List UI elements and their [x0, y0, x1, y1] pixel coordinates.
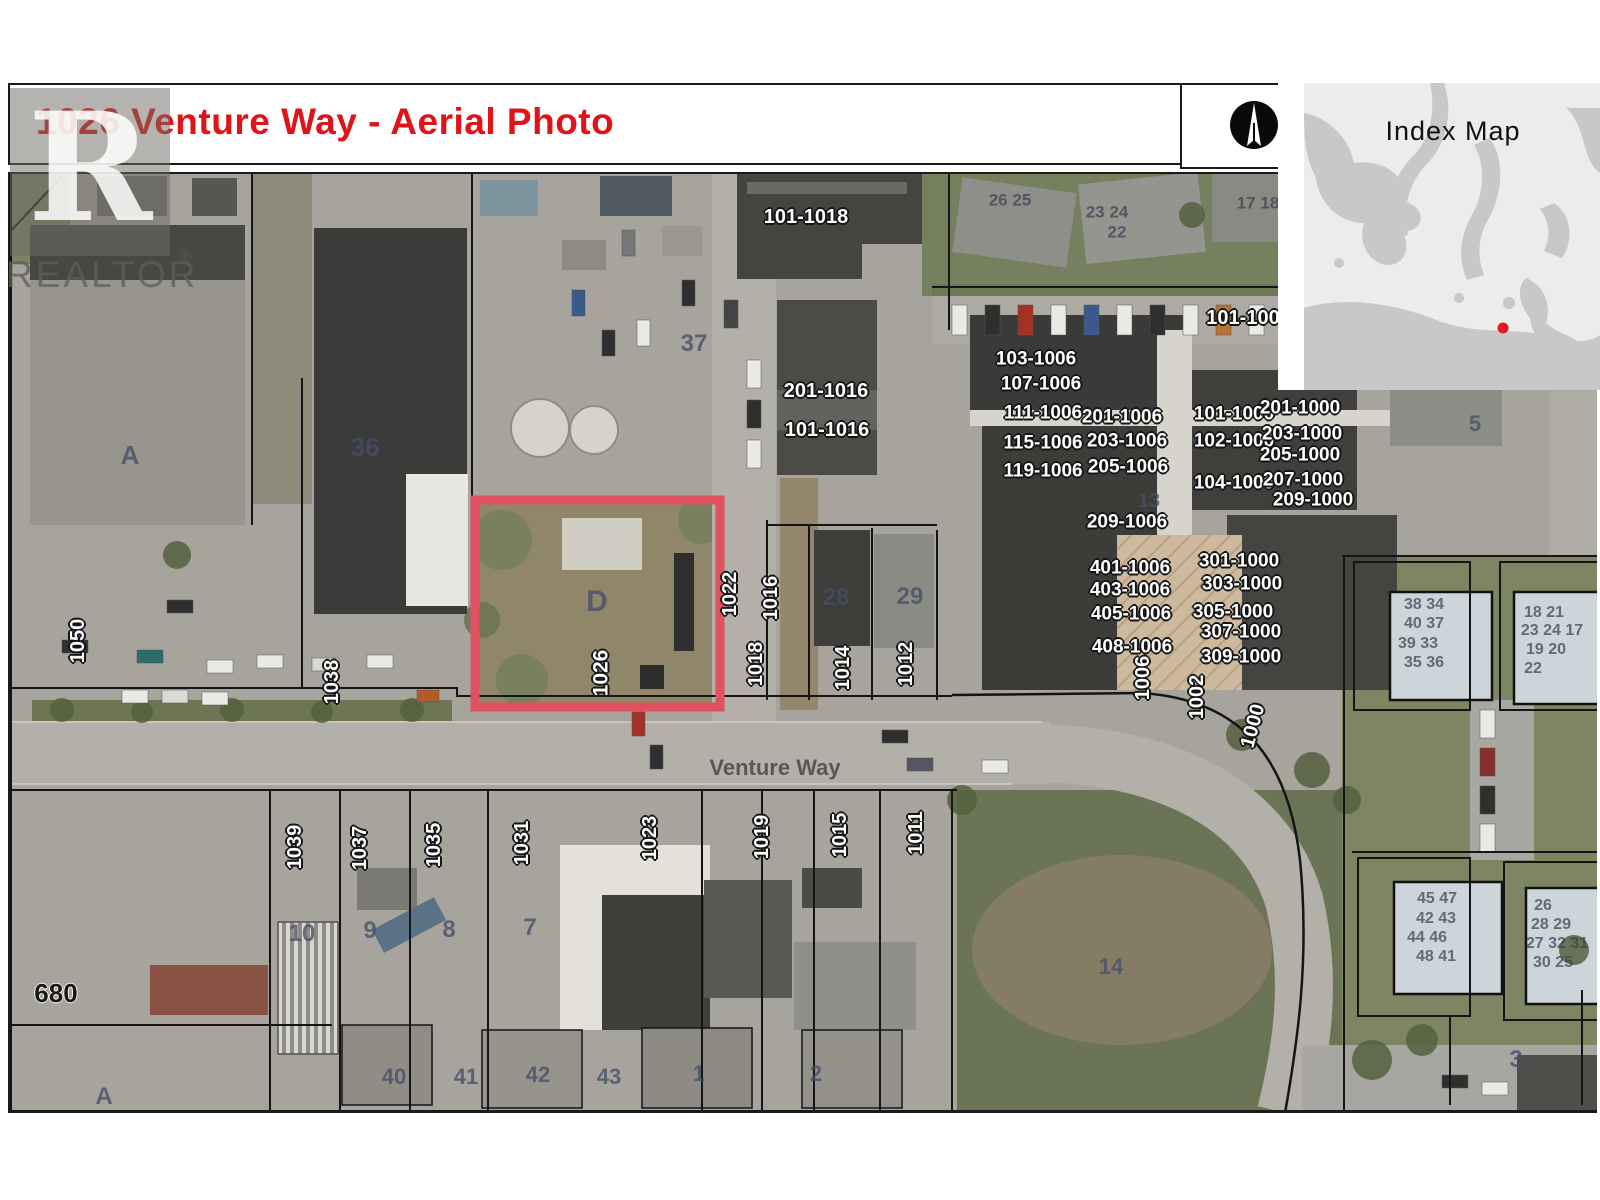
shed-in-1026 [674, 553, 694, 651]
red-roof-building [150, 965, 268, 1015]
aerial-photo-sheet: 101-1018201-1016101-1016103-1006107-1006… [0, 0, 1600, 1200]
index-map-location-dot [1498, 323, 1509, 334]
page-title: 1026 Venture Way - Aerial Photo [36, 101, 614, 143]
townhouse-block [1514, 592, 1597, 704]
index-map-title: Index Map [1338, 116, 1568, 147]
building-5 [1390, 388, 1502, 446]
quonset-hut [278, 922, 338, 1054]
storage-tank [570, 406, 618, 454]
building-28 [814, 530, 870, 646]
storage-tank [511, 399, 569, 457]
building-1016 [777, 300, 877, 475]
townhouse-block [1390, 592, 1492, 700]
index-map-panel: Index Map [1278, 78, 1600, 390]
townhouse-block [1394, 882, 1502, 994]
building-29 [874, 534, 934, 648]
north-arrow-icon [1228, 99, 1280, 151]
title-bar: 1026 Venture Way - Aerial Photo [8, 83, 1293, 165]
courtyard [1117, 535, 1242, 690]
